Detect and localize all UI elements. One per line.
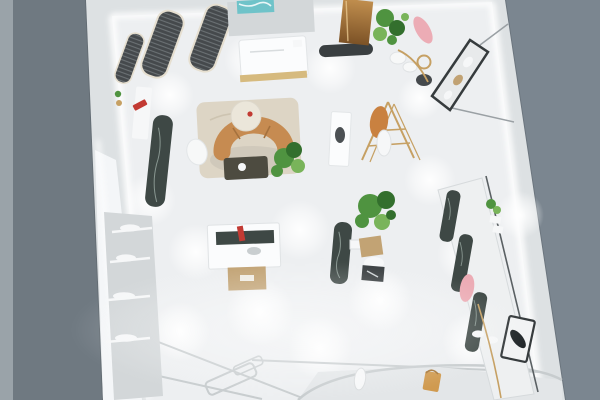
red-decor	[247, 111, 252, 116]
backdrop-edge-strip	[0, 0, 13, 400]
shelf-plant	[493, 206, 501, 214]
plant-leaf	[291, 159, 305, 173]
plant-leaf	[355, 214, 369, 228]
store-render	[0, 0, 600, 400]
plant-leaf	[389, 20, 405, 36]
white-garment	[377, 130, 391, 156]
plant-leaf	[286, 142, 302, 158]
plant-leaf	[377, 191, 395, 209]
plant-leaf	[373, 27, 387, 41]
white-box	[293, 40, 302, 48]
coffee-table	[223, 156, 268, 180]
floor-ambient-glow	[70, 260, 530, 400]
plant-leaf	[271, 165, 283, 177]
plant-leaf	[387, 35, 397, 45]
gold-decor	[116, 100, 122, 106]
folded-garment	[120, 224, 140, 231]
table-item	[247, 247, 261, 255]
lounge	[184, 97, 305, 180]
table-bowl	[238, 163, 246, 171]
teal-artwork	[237, 0, 275, 14]
light-pool	[146, 71, 194, 119]
bronze-mirror	[339, 0, 373, 45]
plant-leaf	[386, 210, 396, 220]
plinth-item	[335, 127, 345, 143]
folded-garment	[116, 254, 136, 261]
plant-small	[115, 91, 121, 97]
store-render-canvas	[0, 0, 600, 400]
plant-small	[401, 13, 409, 21]
round-side-table	[231, 101, 261, 131]
tan-planter	[359, 236, 383, 258]
table-marble-top	[216, 230, 274, 245]
